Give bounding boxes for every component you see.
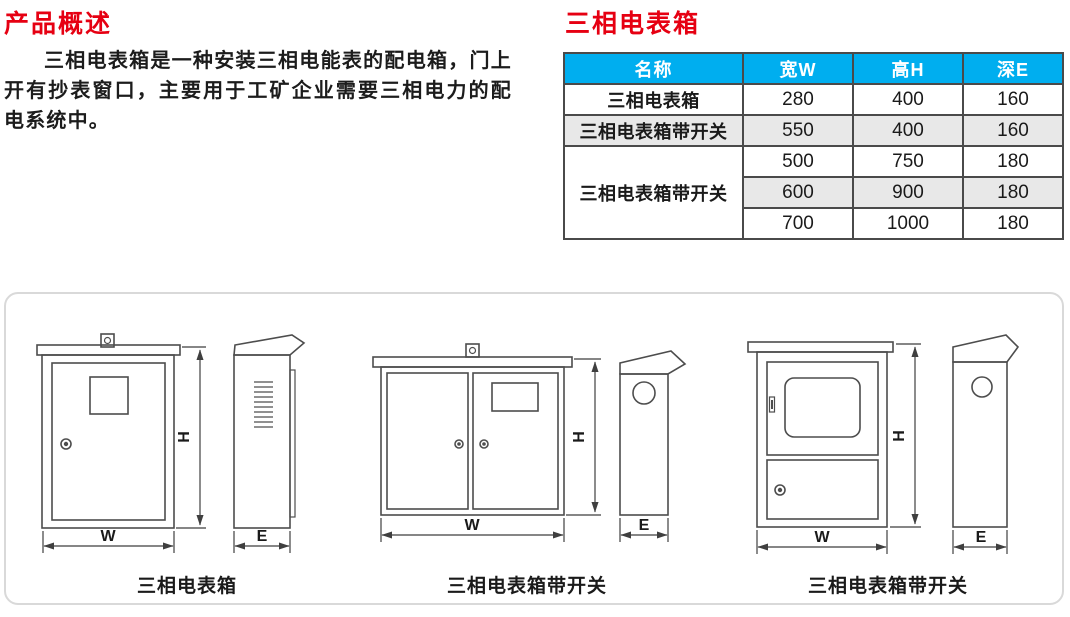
cell-height: 900 xyxy=(853,177,963,208)
cell-height: 750 xyxy=(853,146,963,177)
upper-door xyxy=(767,362,878,455)
overview-title: 产品概述 xyxy=(4,4,112,40)
cell-depth: 160 xyxy=(963,84,1063,115)
cable-hole xyxy=(633,382,655,404)
rain-lip xyxy=(373,357,572,367)
figure2-side-view: E xyxy=(620,351,685,542)
figure3-caption: 三相电表箱带开关 xyxy=(808,571,968,598)
height-dimension-label: H xyxy=(176,431,193,443)
side-body xyxy=(620,374,668,515)
meter-window xyxy=(785,378,860,437)
figure3-dimensions: H W xyxy=(757,344,921,554)
technical-drawings: H W E xyxy=(6,294,1062,603)
lifting-eye-hole xyxy=(470,348,476,354)
width-dimension-label: W xyxy=(464,517,480,534)
drawings-panel: H W E xyxy=(4,292,1064,605)
cell-height: 400 xyxy=(853,84,963,115)
lower-door xyxy=(767,460,878,519)
cell-width: 600 xyxy=(743,177,853,208)
rain-lip xyxy=(748,342,893,352)
cell-depth: 160 xyxy=(963,115,1063,146)
side-body xyxy=(234,355,290,528)
cell-width: 700 xyxy=(743,208,853,239)
cell-height: 400 xyxy=(853,115,963,146)
width-dimension-label: W xyxy=(814,529,830,546)
door xyxy=(52,363,165,520)
cell-name: 三相电表箱 xyxy=(564,84,743,115)
cell-depth: 180 xyxy=(963,208,1063,239)
meter-window xyxy=(90,377,128,414)
cell-name-merged: 三相电表箱带开关 xyxy=(564,146,743,239)
figure1-front-view xyxy=(37,334,180,528)
cell-width: 550 xyxy=(743,115,853,146)
vent-louvers xyxy=(254,382,273,427)
col-header-width: 宽W xyxy=(743,53,853,84)
table-row: 三相电表箱带开关 500 750 180 xyxy=(564,146,1063,177)
rain-hood xyxy=(953,335,1018,362)
cable-hole xyxy=(972,377,992,397)
depth-dimension-label: E xyxy=(976,529,987,546)
depth-dimension-label: E xyxy=(257,528,268,545)
height-dimension-label: H xyxy=(571,431,588,443)
figure1-caption: 三相电表箱 xyxy=(137,571,237,598)
figure1-dimensions: H W xyxy=(43,347,206,553)
right-door-knob-dot xyxy=(482,442,486,446)
cell-height: 1000 xyxy=(853,208,963,239)
catalog-page: { "overview": { "title": "产品概述", "body":… xyxy=(0,0,1070,617)
col-header-depth: 深E xyxy=(963,53,1063,84)
figure2-caption: 三相电表箱带开关 xyxy=(447,571,607,598)
col-header-height: 高H xyxy=(853,53,963,84)
height-dimension-label: H xyxy=(891,430,908,442)
rain-hood xyxy=(620,351,685,374)
left-door-knob-dot xyxy=(457,442,461,446)
lifting-eye-hole xyxy=(105,338,111,344)
table-row: 三相电表箱带开关 550 400 160 xyxy=(564,115,1063,146)
meter-window xyxy=(492,383,538,411)
figure3-front-view xyxy=(748,342,893,527)
width-dimension-label: W xyxy=(100,528,116,545)
spec-title: 三相电表箱 xyxy=(565,4,700,40)
figure1-side-view: E xyxy=(234,335,304,553)
cell-depth: 180 xyxy=(963,146,1063,177)
cell-width: 500 xyxy=(743,146,853,177)
door-knob-dot xyxy=(64,442,68,446)
table-row: 三相电表箱 280 400 160 xyxy=(564,84,1063,115)
latch-handle-bar xyxy=(771,400,773,409)
rain-hood xyxy=(234,335,304,355)
door-knob-dot xyxy=(778,488,782,492)
spec-table: 名称 宽W 高H 深E 三相电表箱 280 400 160 三相电表箱带开关 5… xyxy=(563,52,1064,240)
lifting-eye xyxy=(466,344,479,357)
spec-header-row: 名称 宽W 高H 深E xyxy=(564,53,1063,84)
cell-name: 三相电表箱带开关 xyxy=(564,115,743,146)
side-body xyxy=(953,362,1007,527)
figure3-side-view: E xyxy=(953,335,1018,554)
cell-depth: 180 xyxy=(963,177,1063,208)
cell-width: 280 xyxy=(743,84,853,115)
overview-paragraph: 三相电表箱是一种安装三相电能表的配电箱，门上开有抄表窗口，主要用于工矿企业需要三… xyxy=(4,46,512,136)
figure2-front-view xyxy=(373,344,572,515)
depth-dimension-label: E xyxy=(639,517,650,534)
col-header-name: 名称 xyxy=(564,53,743,84)
